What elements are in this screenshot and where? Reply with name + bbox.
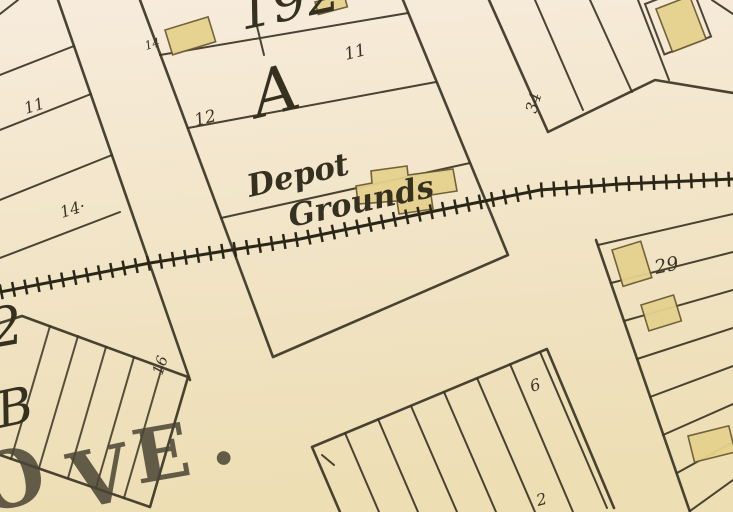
atlas-map-page: 192 A 11 12 14 11 14· Depot Grounds 34 2… — [0, 0, 733, 512]
map-canvas: 192 A 11 12 14 11 14· Depot Grounds 34 2… — [0, 0, 733, 512]
